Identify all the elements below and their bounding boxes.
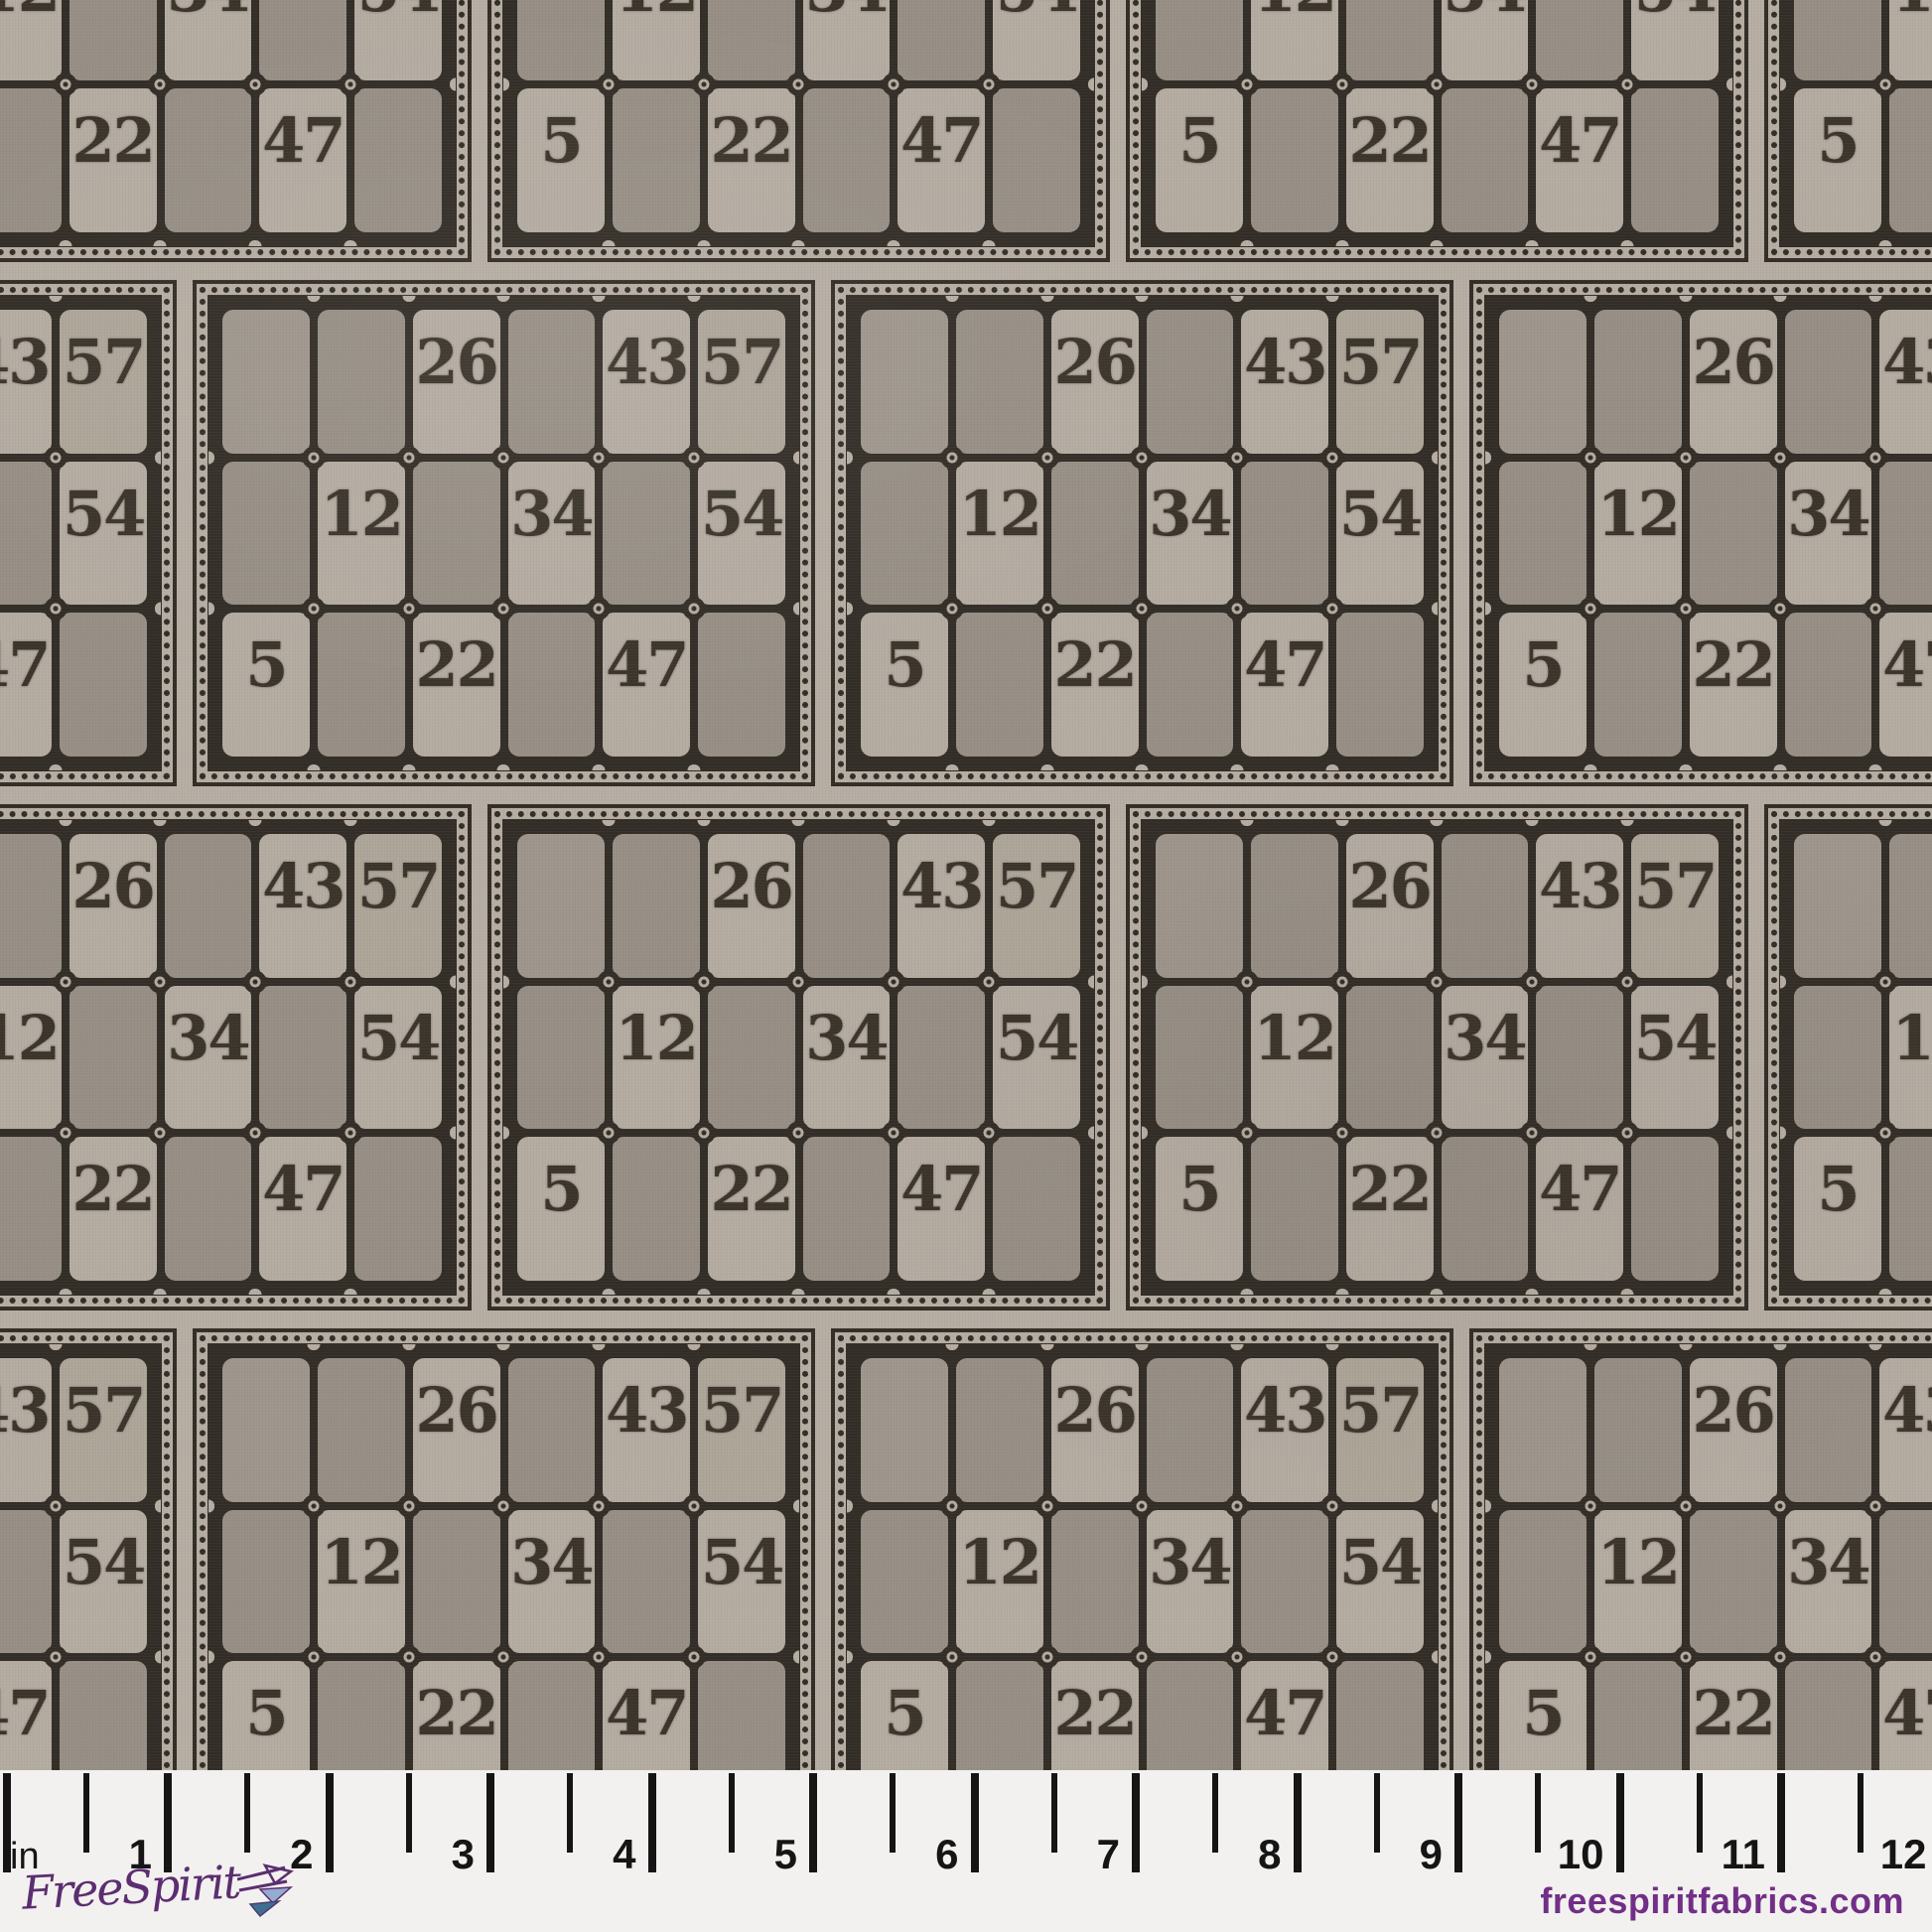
border-mark [685, 761, 704, 770]
card-cell [165, 1137, 252, 1281]
lotto-card: 26435712345452247 [1764, 0, 1932, 262]
eyelet-icon [340, 1122, 362, 1145]
lotto-card: 26435712345452247 [0, 1328, 177, 1770]
eyelet-icon [397, 1646, 420, 1669]
border-mark [1581, 1344, 1599, 1353]
border-mark [47, 296, 66, 305]
card-number-cell: 43 [1536, 834, 1623, 978]
ruler-number: 3 [452, 1834, 475, 1875]
card-number-cell: 5 [1794, 88, 1881, 232]
eyelet-icon [692, 970, 715, 993]
card-cell [861, 1358, 948, 1502]
card-number-cell: 57 [60, 1358, 147, 1502]
border-mark [1780, 972, 1789, 991]
card-border-beads: 26435712345452247 [1771, 0, 1932, 255]
card-number-cell: 26 [1051, 310, 1139, 454]
card-number-cell: 47 [1879, 613, 1932, 757]
eyelet-icon [1330, 73, 1353, 96]
eyelet-icon [1521, 1122, 1544, 1145]
card-cell [1889, 834, 1932, 978]
card-grid: 26435712345452247 [0, 295, 162, 771]
card-number-cell: 54 [1631, 0, 1719, 80]
card-number-cell: 22 [69, 1137, 157, 1281]
card-number-cell: 12 [956, 1510, 1043, 1654]
border-mark [1037, 296, 1056, 305]
card-cell [1879, 462, 1932, 606]
border-mark [599, 237, 618, 246]
border-mark [790, 600, 799, 619]
border-mark [1581, 761, 1599, 770]
card-cell [1346, 986, 1434, 1130]
card-cell [1442, 88, 1529, 232]
border-mark [447, 972, 456, 991]
border-mark [1429, 1496, 1438, 1515]
border-mark [1618, 1286, 1637, 1295]
border-mark [1332, 1286, 1351, 1295]
card-cell [1241, 462, 1328, 606]
eyelet-icon [45, 1494, 68, 1517]
border-mark [1332, 237, 1351, 246]
card-cell [1051, 462, 1139, 606]
ruler-tick-half [1858, 1773, 1863, 1853]
border-mark [1428, 237, 1447, 246]
eyelet-icon [940, 598, 963, 621]
card-number-cell: 34 [165, 0, 252, 80]
card-number-cell: 12 [1251, 986, 1338, 1130]
border-mark [980, 1286, 999, 1295]
card-cell [0, 834, 62, 978]
card-cell [318, 1358, 405, 1502]
border-mark [590, 296, 609, 305]
ruler-tick-half [890, 1773, 896, 1853]
card-cell [1536, 0, 1623, 80]
card-cell [1336, 613, 1424, 757]
border-mark [685, 296, 704, 305]
border-mark [847, 448, 856, 467]
card-cell [603, 1510, 690, 1654]
border-mark [1133, 296, 1152, 305]
card-number-cell: 34 [1442, 986, 1529, 1130]
border-mark [1875, 1286, 1894, 1295]
card-cell [1241, 1510, 1328, 1654]
card-border-beads: 26435712345452247 [838, 1335, 1447, 1770]
ruler-tick-half [729, 1773, 735, 1853]
border-mark [1429, 1648, 1438, 1667]
card-number-cell: 5 [517, 88, 605, 232]
card-number-cell: 12 [613, 0, 700, 80]
border-mark [494, 761, 513, 770]
border-mark [1771, 761, 1790, 770]
eyelet-icon [1864, 1494, 1887, 1517]
ruler-tick-half [406, 1773, 412, 1853]
card-number-cell: 22 [1690, 613, 1777, 757]
card-cell [1251, 88, 1338, 232]
eyelet-icon [940, 446, 963, 469]
lotto-card: 26435712345452247 [0, 804, 472, 1311]
card-cell [1889, 88, 1932, 232]
card-cell [1594, 1358, 1682, 1502]
card-number-cell: 57 [698, 310, 785, 454]
eyelet-icon [883, 73, 905, 96]
eyelet-icon [45, 1646, 68, 1669]
border-mark [208, 448, 217, 467]
card-cell [1879, 1510, 1932, 1654]
card-grid: 26435712345452247 [1484, 1343, 1932, 1770]
ruler-tick-inch [1132, 1773, 1140, 1872]
ruler-tick-half [1535, 1773, 1541, 1853]
ruler-number: 11 [1722, 1834, 1765, 1875]
border-mark [503, 75, 512, 94]
card-cell [1156, 0, 1243, 80]
border-mark [847, 1496, 856, 1515]
card-cell [60, 613, 147, 757]
card-cell [708, 0, 795, 80]
card-cell [413, 1510, 500, 1654]
card-number-cell: 22 [69, 88, 157, 232]
lotto-card: 26435712345452247 [193, 1328, 815, 1770]
card-number-cell: 47 [1879, 1661, 1932, 1770]
card-number-cell: 47 [0, 613, 52, 757]
eyelet-icon [1131, 598, 1154, 621]
card-border-beads: 26435712345452247 [0, 1335, 170, 1770]
card-cell [165, 834, 252, 978]
card-cell [1499, 1510, 1587, 1654]
card-number-cell: 47 [259, 88, 346, 232]
eyelet-icon [1769, 1494, 1792, 1517]
border-mark [1485, 1648, 1494, 1667]
card-cell [508, 310, 596, 454]
card-cell [0, 462, 52, 606]
border-mark [1724, 75, 1732, 94]
card-number-cell: 22 [1690, 1661, 1777, 1770]
card-number-cell: 12 [1251, 0, 1338, 80]
lotto-card: 26435712345452247 [831, 1328, 1453, 1770]
border-mark [789, 237, 808, 246]
eyelet-icon [787, 1122, 810, 1145]
paper-airplane-icon [237, 1863, 299, 1918]
card-cell [1156, 834, 1243, 978]
border-mark [1228, 1344, 1247, 1353]
card-cell [897, 986, 985, 1130]
eyelet-icon [1131, 446, 1154, 469]
ruler-tick-inch [809, 1773, 817, 1872]
border-mark [1429, 448, 1438, 467]
card-cell [1147, 613, 1234, 757]
card-border-beads: 26435712345452247 [0, 811, 465, 1304]
card-number-cell: 26 [413, 310, 500, 454]
card-cell [222, 1358, 310, 1502]
border-mark [1523, 820, 1542, 829]
card-cell [1594, 310, 1682, 454]
lotto-card: 26435712345452247 [831, 280, 1453, 786]
border-mark [599, 820, 618, 829]
eyelet-icon [1769, 598, 1792, 621]
border-mark [342, 1286, 360, 1295]
border-mark [304, 296, 323, 305]
card-grid: 26435712345452247 [1141, 0, 1733, 247]
border-mark [1228, 761, 1247, 770]
border-mark [208, 1648, 217, 1667]
border-mark [1085, 1124, 1094, 1143]
lotto-card: 26435712345452247 [487, 0, 1110, 262]
card-cell [613, 88, 700, 232]
card-cell [1499, 310, 1587, 454]
card-number-cell: 12 [318, 1510, 405, 1654]
card-cell [1631, 88, 1719, 232]
card-cell [60, 1661, 147, 1770]
card-number-cell: 43 [259, 834, 346, 978]
card-number-cell: 43 [897, 834, 985, 978]
card-number-cell: 12 [956, 462, 1043, 606]
card-cell [1690, 462, 1777, 606]
card-number-cell: 43 [1241, 1358, 1328, 1502]
border-mark [685, 1344, 704, 1353]
border-mark [847, 600, 856, 619]
eyelet-icon [883, 970, 905, 993]
card-cell [1594, 1661, 1682, 1770]
card-border-beads: 26435712345452247 [1133, 811, 1741, 1304]
card-number-cell: 54 [354, 986, 442, 1130]
card-cell [1147, 1358, 1234, 1502]
card-cell [956, 310, 1043, 454]
border-mark [503, 972, 512, 991]
card-cell [318, 310, 405, 454]
card-cell [1251, 1137, 1338, 1281]
card-number-cell: 34 [508, 462, 596, 606]
card-cell [1785, 613, 1872, 757]
eyelet-icon [149, 73, 172, 96]
card-border-beads: 26435712345452247 [200, 287, 808, 779]
eyelet-icon [1035, 1494, 1058, 1517]
eyelet-icon [1226, 1494, 1249, 1517]
card-number-cell: 43 [0, 1358, 52, 1502]
eyelet-icon [302, 1494, 325, 1517]
border-mark [1085, 75, 1094, 94]
ruler-number: 4 [613, 1834, 635, 1875]
card-number-cell: 47 [259, 1137, 346, 1281]
ruler-tick-inch [648, 1773, 656, 1872]
eyelet-icon [244, 970, 267, 993]
border-mark [494, 296, 513, 305]
eyelet-icon [149, 1122, 172, 1145]
border-mark [1323, 761, 1342, 770]
eyelet-icon [1321, 446, 1344, 469]
ruler-tick-inch [3, 1773, 11, 1872]
card-number-cell: 26 [1346, 834, 1434, 978]
border-mark [208, 1496, 217, 1515]
border-mark [1142, 972, 1151, 991]
card-number-cell: 43 [603, 1358, 690, 1502]
card-grid: 26435712345452247 [207, 1343, 800, 1770]
border-mark [942, 761, 961, 770]
border-mark [980, 820, 999, 829]
card-number-cell: 5 [222, 613, 310, 757]
eyelet-icon [302, 1646, 325, 1669]
border-mark [847, 1648, 856, 1667]
eyelet-icon [1426, 1122, 1449, 1145]
card-cell [803, 1137, 891, 1281]
eyelet-icon [597, 970, 620, 993]
card-grid: 26435712345452247 [502, 0, 1095, 247]
card-cell [259, 0, 346, 80]
ruler-tick-inch [1454, 1773, 1462, 1872]
card-border-beads: 26435712345452247 [0, 0, 465, 255]
border-mark [1323, 1344, 1342, 1353]
border-mark [1428, 820, 1447, 829]
border-mark [1676, 296, 1695, 305]
card-cell [861, 1510, 948, 1654]
website-url: freespiritfabrics.com [1540, 1880, 1904, 1922]
card-border-beads: 26435712345452247 [1476, 287, 1932, 779]
border-mark [885, 237, 903, 246]
border-mark [1724, 972, 1732, 991]
lotto-card: 26435712345452247 [1469, 1328, 1932, 1770]
border-mark [1237, 1286, 1256, 1295]
card-border-beads: 26435712345452247 [1133, 0, 1741, 255]
ruler-number: 7 [1097, 1834, 1120, 1875]
eyelet-icon [1769, 1646, 1792, 1669]
border-mark [1523, 237, 1542, 246]
card-number-cell: 34 [508, 1510, 596, 1654]
card-number-cell: 26 [1690, 310, 1777, 454]
card-number-cell: 26 [69, 834, 157, 978]
card-cell [956, 1358, 1043, 1502]
eyelet-icon [1131, 1494, 1154, 1517]
eyelet-icon [1235, 1122, 1258, 1145]
eyelet-icon [1235, 970, 1258, 993]
eyelet-icon [588, 1494, 611, 1517]
card-number-cell: 26 [413, 1358, 500, 1502]
card-cell [1346, 0, 1434, 80]
ruler-number: 6 [935, 1834, 958, 1875]
border-mark [590, 761, 609, 770]
card-number-cell: 12 [1889, 986, 1932, 1130]
card-number-cell: 12 [1594, 1510, 1682, 1654]
lotto-card: 26435712345452247 [1126, 804, 1748, 1311]
card-cell [1785, 310, 1872, 454]
card-number-cell: 47 [1536, 88, 1623, 232]
card-number-cell: 12 [0, 986, 62, 1130]
card-border-beads: 26435712345452247 [494, 811, 1103, 1304]
lotto-card: 26435712345452247 [0, 280, 177, 786]
ruler-tick-half [1051, 1773, 1057, 1853]
card-cell [0, 1137, 62, 1281]
eyelet-icon [1035, 1646, 1058, 1669]
card-cell [1147, 310, 1234, 454]
card-number-cell: 57 [698, 1358, 785, 1502]
eyelet-icon [1521, 970, 1544, 993]
ruler-tick-half [1212, 1773, 1218, 1853]
card-grid: 26435712345452247 [1484, 295, 1932, 771]
eyelet-icon [244, 1122, 267, 1145]
card-cell [1631, 1137, 1719, 1281]
lotto-card: 26435712345452247 [487, 804, 1110, 1311]
card-cell [517, 0, 605, 80]
card-number-cell: 34 [1785, 462, 1872, 606]
border-mark [789, 1286, 808, 1295]
eyelet-icon [1579, 598, 1601, 621]
border-mark [885, 820, 903, 829]
eyelet-icon [683, 1494, 706, 1517]
ruler-tick-inch [1777, 1773, 1785, 1872]
eyelet-icon [302, 598, 325, 621]
eyelet-icon [1426, 970, 1449, 993]
eyelet-icon [1864, 598, 1887, 621]
eyelet-icon [978, 970, 1001, 993]
card-cell [354, 1137, 442, 1281]
card-cell [0, 1510, 52, 1654]
card-number-cell: 22 [1346, 1137, 1434, 1281]
border-mark [1133, 761, 1152, 770]
eyelet-icon [397, 1494, 420, 1517]
card-number-cell: 5 [1156, 88, 1243, 232]
eyelet-icon [1321, 1494, 1344, 1517]
card-number-cell: 54 [60, 1510, 147, 1654]
eyelet-icon [1035, 598, 1058, 621]
eyelet-icon [1674, 1494, 1697, 1517]
border-mark [503, 1124, 512, 1143]
border-mark [152, 448, 161, 467]
card-border-beads: 26435712345452247 [1476, 1335, 1932, 1770]
border-mark [447, 1124, 456, 1143]
card-cell [803, 88, 891, 232]
eyelet-icon [1226, 1646, 1249, 1669]
border-mark [399, 296, 418, 305]
card-cell [1794, 0, 1881, 80]
card-cell [1785, 1358, 1872, 1502]
card-number-cell: 34 [803, 986, 891, 1130]
border-mark [1771, 1344, 1790, 1353]
card-cell [803, 834, 891, 978]
border-mark [342, 820, 360, 829]
eyelet-icon [54, 1122, 76, 1145]
card-number-cell: 47 [603, 1661, 690, 1770]
card-number-cell: 12 [0, 0, 62, 80]
card-number-cell: 47 [897, 1137, 985, 1281]
eyelet-icon [1521, 73, 1544, 96]
border-mark [1866, 1344, 1885, 1353]
eyelet-icon [1579, 1646, 1601, 1669]
ruler-tick-inch [486, 1773, 494, 1872]
card-border-beads: 26435712345452247 [494, 0, 1103, 255]
eyelet-icon [787, 970, 810, 993]
card-number-cell: 43 [1879, 310, 1932, 454]
card-cell [413, 462, 500, 606]
border-mark [399, 761, 418, 770]
border-mark [789, 820, 808, 829]
fabric-product-image: 2643571234545224726435712345452247264357… [0, 0, 1932, 1932]
card-cell [1499, 462, 1587, 606]
border-mark [151, 237, 170, 246]
card-cell [1336, 1661, 1424, 1770]
card-cell [508, 613, 596, 757]
card-cell [508, 1661, 596, 1770]
card-cell [1690, 1510, 1777, 1654]
card-number-cell: 22 [413, 613, 500, 757]
card-number-cell: 47 [897, 88, 985, 232]
eyelet-icon [1235, 73, 1258, 96]
card-number-cell: 5 [1499, 613, 1587, 757]
border-mark [1724, 1124, 1732, 1143]
freespirit-logo: FreeSpirit [22, 1864, 299, 1918]
card-number-cell: 12 [1889, 0, 1932, 80]
eyelet-icon [45, 598, 68, 621]
card-number-cell: 5 [861, 1661, 948, 1770]
card-number-cell: 34 [1147, 1510, 1234, 1654]
card-cell [861, 310, 948, 454]
card-cell [318, 1661, 405, 1770]
eyelet-icon [340, 73, 362, 96]
